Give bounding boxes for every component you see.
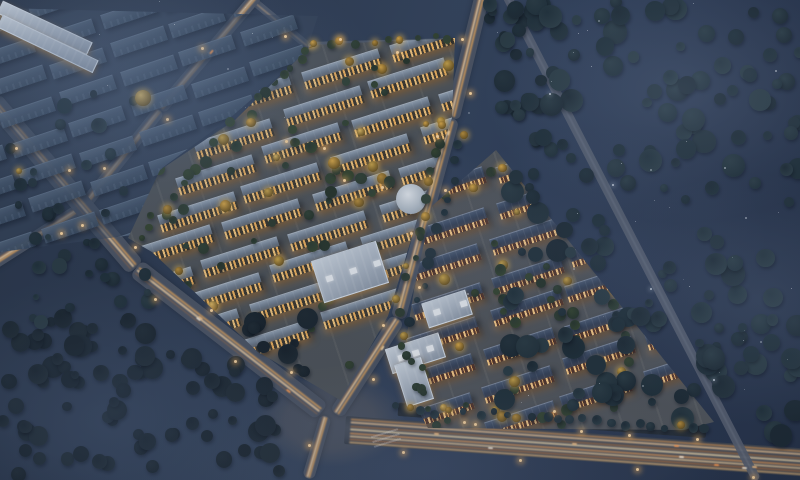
star-speck [174, 24, 175, 25]
star-speck [775, 70, 777, 72]
star-speck [635, 221, 636, 222]
star-speck [693, 3, 694, 4]
star-specks-layer [0, 0, 800, 480]
star-speck [591, 66, 592, 67]
star-speck [724, 167, 726, 169]
star-speck [744, 389, 745, 390]
star-speck [732, 257, 733, 258]
star-speck [577, 213, 578, 214]
star-speck [227, 68, 229, 70]
star-speck [621, 163, 622, 164]
star-speck [467, 293, 469, 295]
star-speck [252, 33, 253, 34]
star-speck [551, 81, 552, 82]
star-speck [745, 217, 747, 219]
star-speck [159, 1, 160, 2]
star-speck [521, 402, 522, 403]
star-speck [245, 107, 246, 108]
star-speck [689, 286, 690, 287]
star-speck [719, 372, 720, 373]
star-speck [787, 359, 788, 360]
star-speck [521, 309, 523, 311]
star-speck [743, 340, 744, 341]
star-speck [528, 395, 529, 396]
star-speck [272, 37, 273, 38]
star-speck [497, 32, 498, 33]
star-speck [598, 20, 600, 22]
star-speck [284, 117, 285, 118]
star-speck [107, 85, 108, 86]
star-speck [573, 52, 574, 53]
aerial-night-render-scene [0, 0, 800, 480]
star-speck [686, 141, 687, 142]
star-speck [744, 330, 745, 331]
star-speck [468, 112, 470, 114]
star-speck [599, 383, 600, 384]
star-speck [603, 316, 604, 317]
star-speck [578, 33, 579, 34]
star-speck [791, 288, 792, 289]
star-speck [245, 7, 246, 8]
star-speck [654, 200, 655, 201]
star-speck [587, 30, 588, 31]
star-speck [99, 34, 100, 35]
star-speck [760, 341, 762, 343]
star-speck [683, 279, 684, 280]
star-speck [778, 212, 779, 213]
star-speck [669, 207, 670, 208]
star-speck [642, 385, 644, 387]
star-speck [650, 169, 652, 171]
star-speck [573, 268, 575, 270]
